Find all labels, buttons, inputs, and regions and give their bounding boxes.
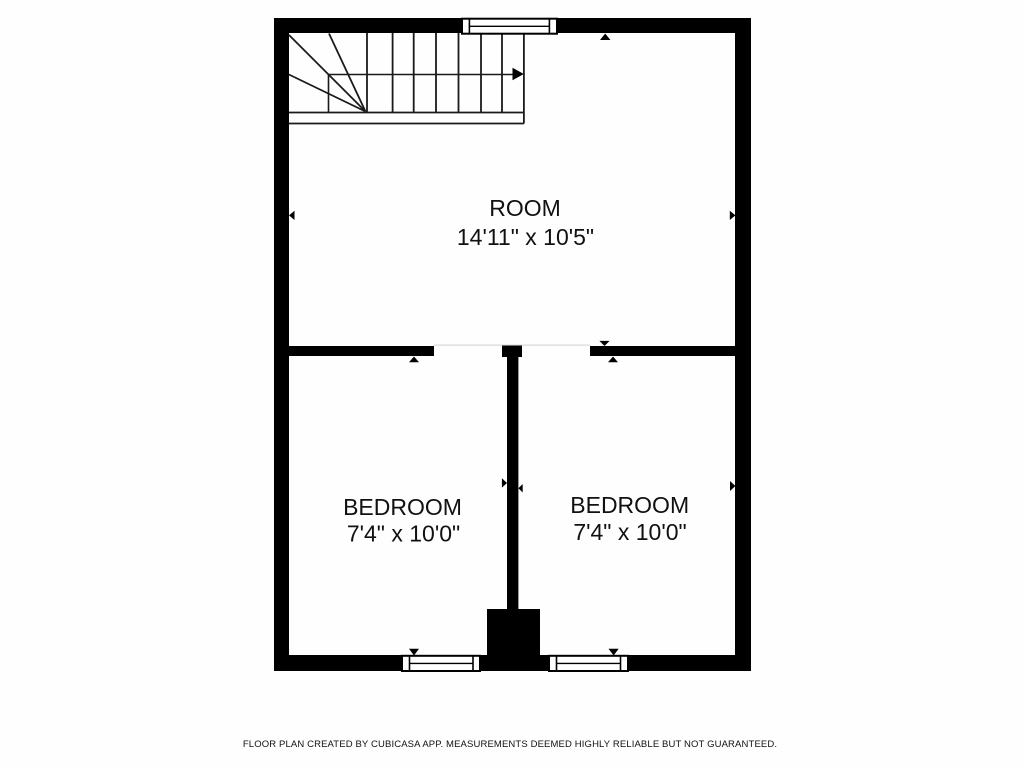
svg-text:ROOM: ROOM xyxy=(489,195,561,221)
svg-text:BEDROOM: BEDROOM xyxy=(343,494,462,520)
svg-text:7'4" x 10'0": 7'4" x 10'0" xyxy=(573,519,686,545)
svg-text:FLOOR PLAN CREATED BY CUBICASA: FLOOR PLAN CREATED BY CUBICASA APP. MEAS… xyxy=(243,739,777,750)
svg-text:BEDROOM: BEDROOM xyxy=(570,492,689,518)
svg-text:7'4" x 10'0": 7'4" x 10'0" xyxy=(347,521,460,547)
svg-text:14'11" x 10'5": 14'11" x 10'5" xyxy=(457,224,594,250)
